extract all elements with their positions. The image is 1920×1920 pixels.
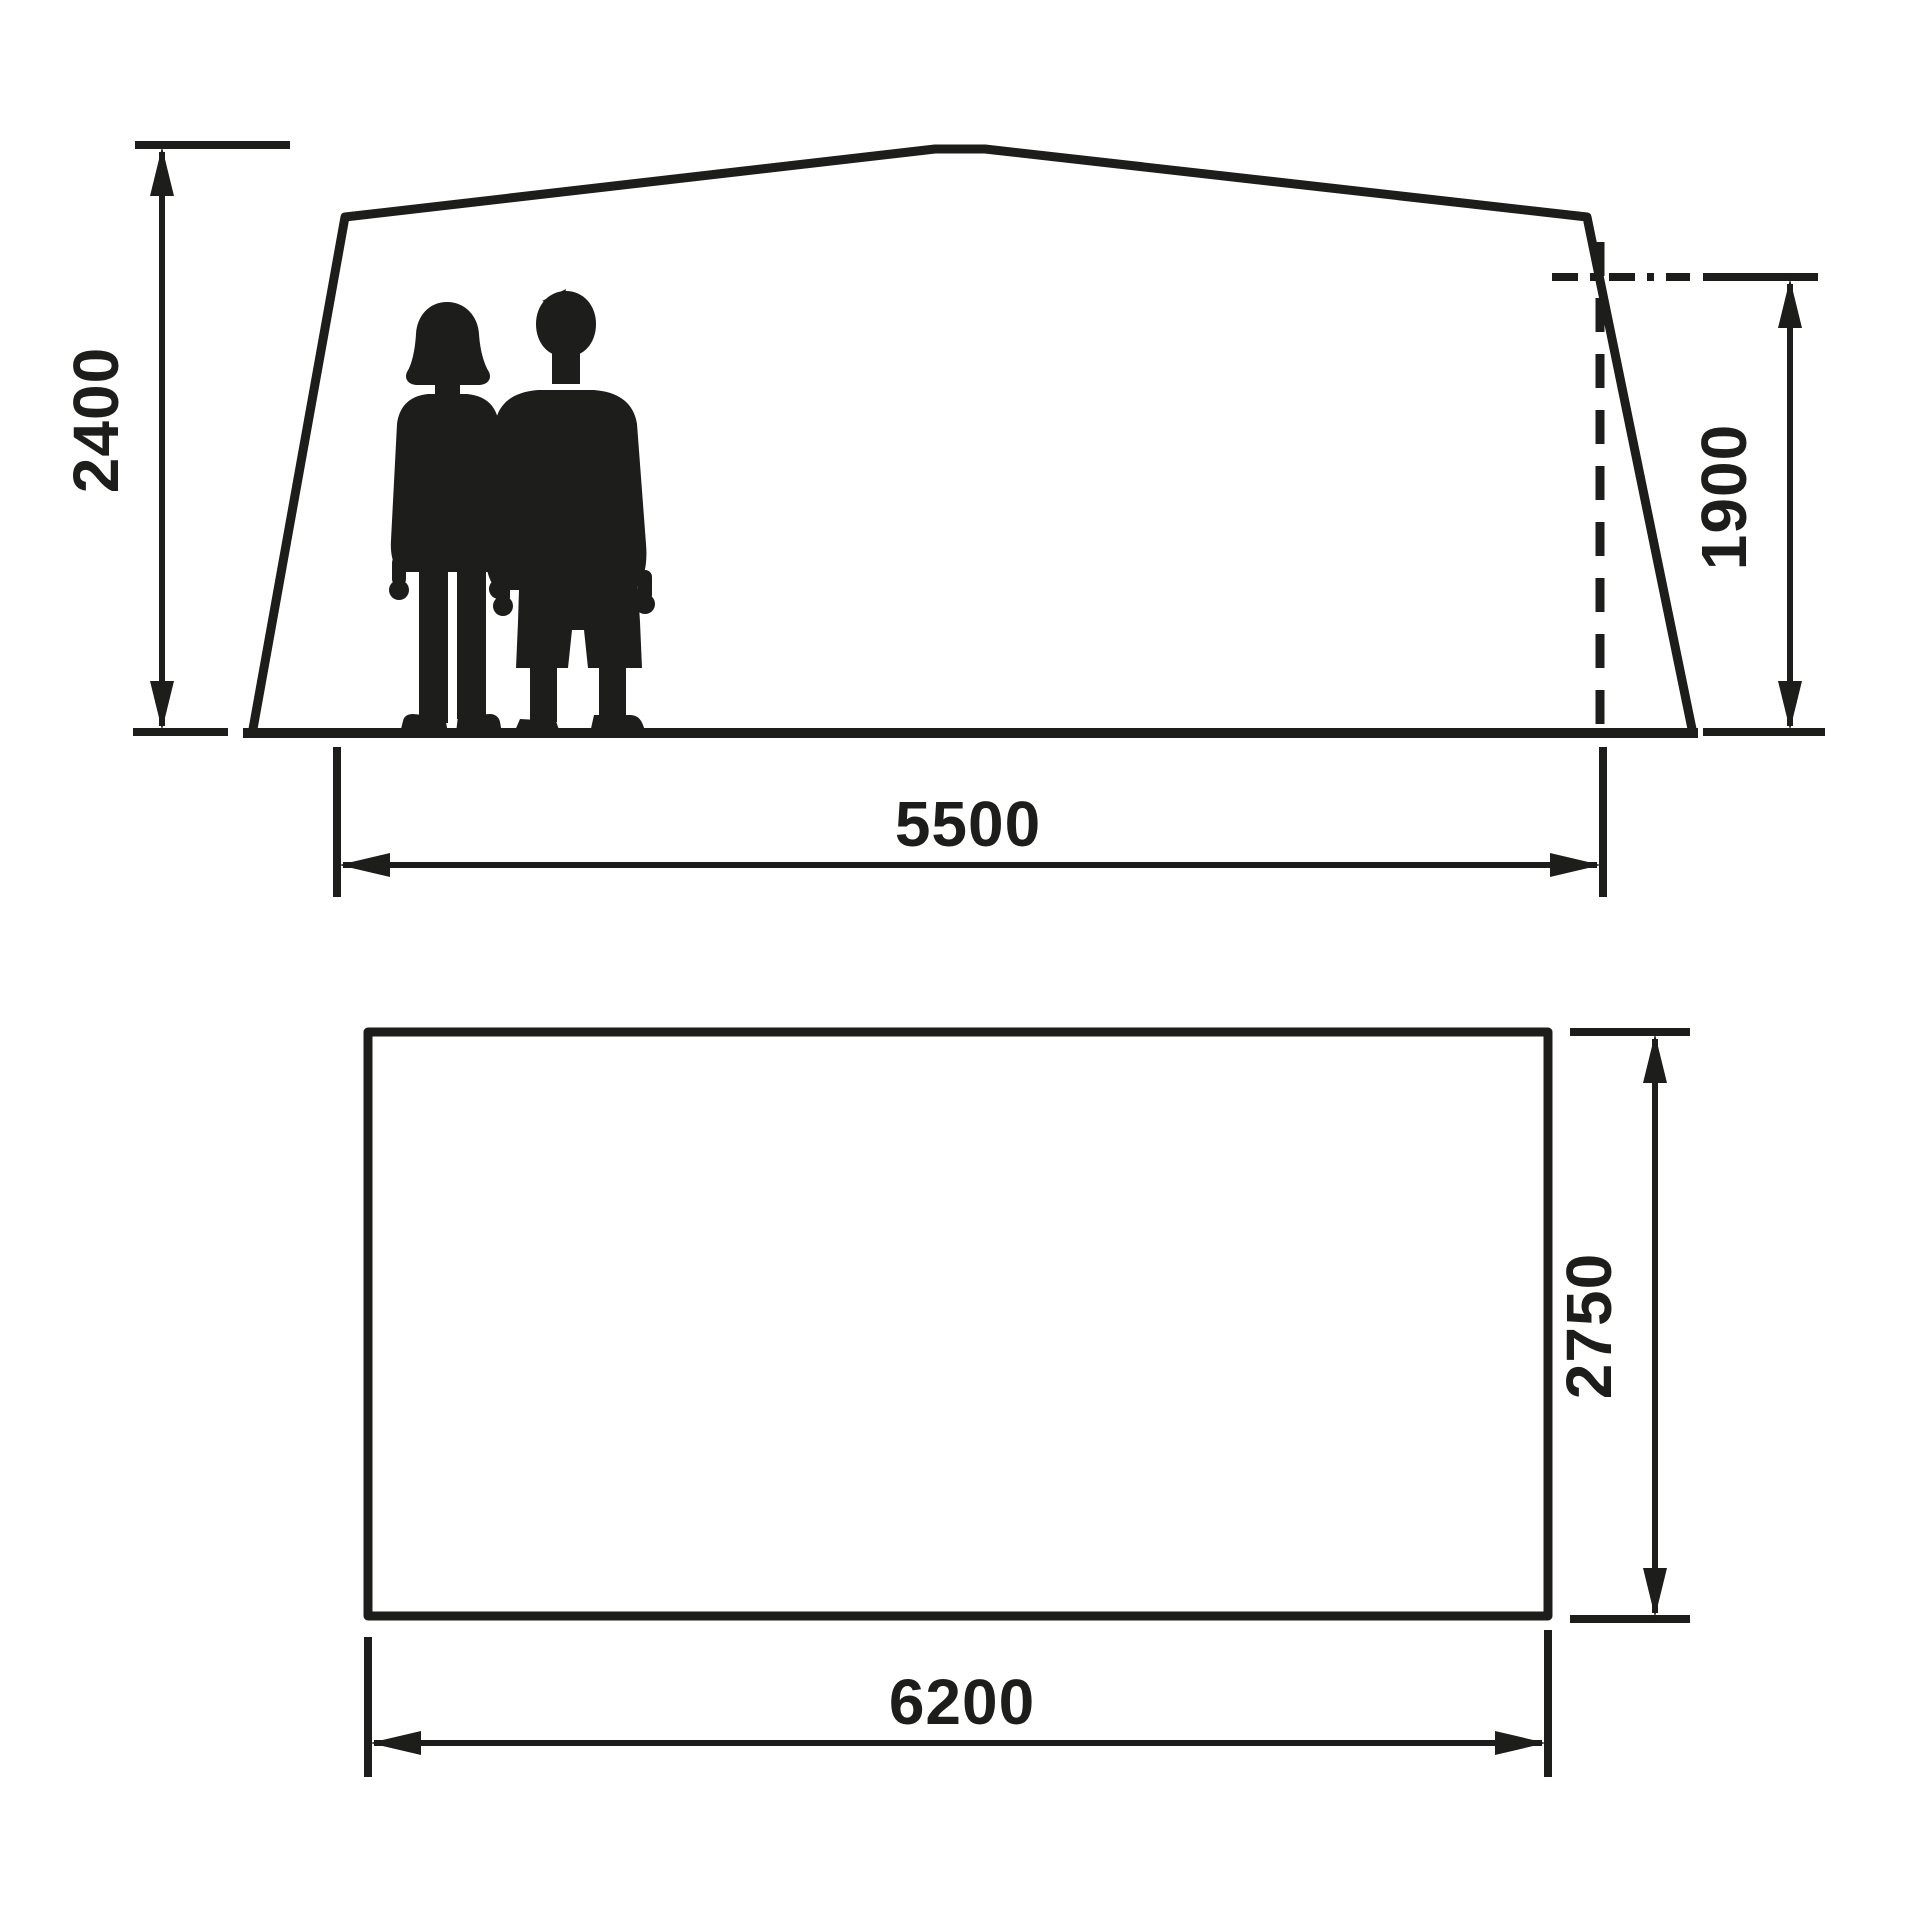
dim-5500-label: 5500: [895, 788, 1041, 860]
dimension-height-left: 2400: [60, 145, 290, 732]
floor-plan-view: 2750 6200: [368, 1032, 1690, 1777]
dim-6200-arrow-right: [1495, 1731, 1546, 1755]
dim-2400-label: 2400: [60, 347, 132, 493]
side-elevation-view: 2400 1900 5500: [60, 145, 1825, 897]
dim-2400-arrow-up: [150, 147, 174, 196]
dim-5500-arrow-left: [339, 853, 390, 877]
dimension-plan-width: 6200: [368, 1630, 1548, 1777]
dim-1900-label: 1900: [1688, 424, 1760, 570]
dimension-height-right: 1900: [1688, 277, 1825, 732]
dim-2750-arrow-down: [1643, 1568, 1667, 1617]
dim-1900-arrow-down: [1778, 681, 1802, 730]
tent-dimension-diagram: 2400 1900 5500: [0, 0, 1920, 1920]
floor-plan-rectangle: [368, 1032, 1548, 1616]
dim-6200-label: 6200: [889, 1666, 1035, 1738]
dimension-plan-depth: 2750: [1553, 1032, 1690, 1619]
dim-2750-label: 2750: [1553, 1253, 1625, 1399]
man-silhouette: [486, 289, 655, 733]
dim-5500-arrow-right: [1550, 853, 1601, 877]
dim-1900-arrow-up: [1778, 279, 1802, 328]
dim-2400-arrow-down: [150, 681, 174, 730]
dim-6200-arrow-left: [370, 1731, 421, 1755]
dimension-base-width: 5500: [337, 747, 1603, 897]
dim-2750-arrow-up: [1643, 1034, 1667, 1083]
